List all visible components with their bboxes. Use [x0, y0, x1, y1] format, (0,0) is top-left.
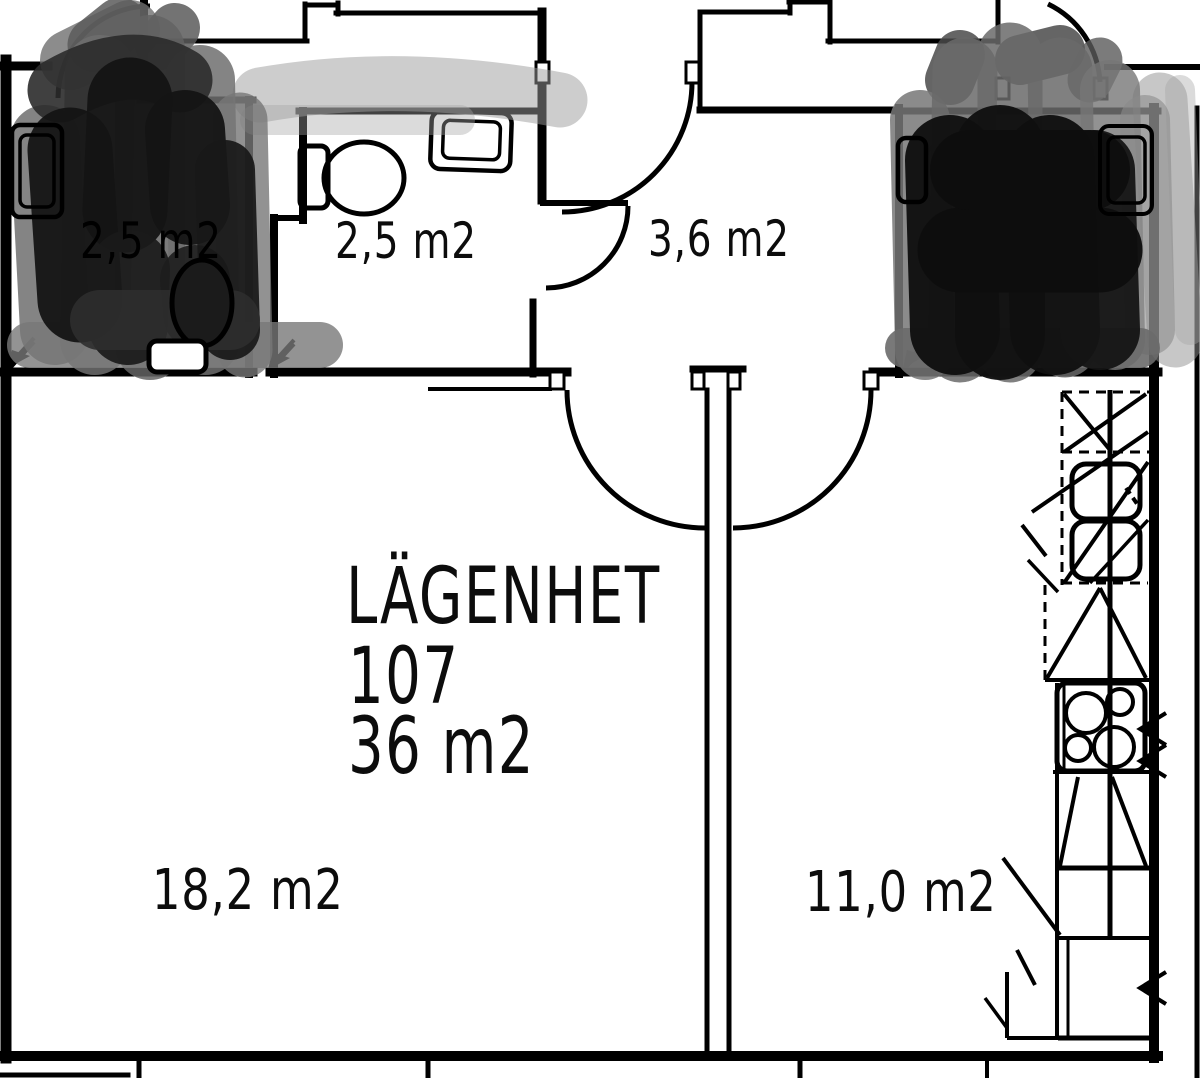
redaction-scribble-right: [905, 50, 1190, 350]
kitchen-sink: [1072, 464, 1140, 579]
living-room-door-arc: [567, 390, 705, 528]
apartment-area: 36 m2: [348, 702, 535, 792]
toilet-tank-left: [149, 341, 206, 372]
toilet-bowl-left: [172, 260, 232, 346]
toilet-bowl: [324, 142, 404, 214]
room-label-bathroom-left: 2,5 m2: [80, 212, 222, 270]
kitchen-counter: [985, 390, 1166, 1038]
floor-plan-page: 2,5 m2 2,5 m2 3,6 m2 LÄGENHET 107 36 m2 …: [0, 0, 1200, 1078]
bathroom-door-arc: [546, 206, 628, 288]
room-label-kitchen-room: 11,0 m2: [805, 860, 997, 925]
stove: [1057, 683, 1145, 771]
redaction-scribble-left: [30, 25, 560, 350]
room-label-living: 18,2 m2: [152, 858, 344, 923]
room-label-bathroom: 2,5 m2: [335, 212, 477, 270]
kitchen-room-door-arc: [733, 390, 871, 528]
room-label-hall: 3,6 m2: [648, 210, 790, 268]
apartment-title: LÄGENHET: [346, 552, 661, 642]
